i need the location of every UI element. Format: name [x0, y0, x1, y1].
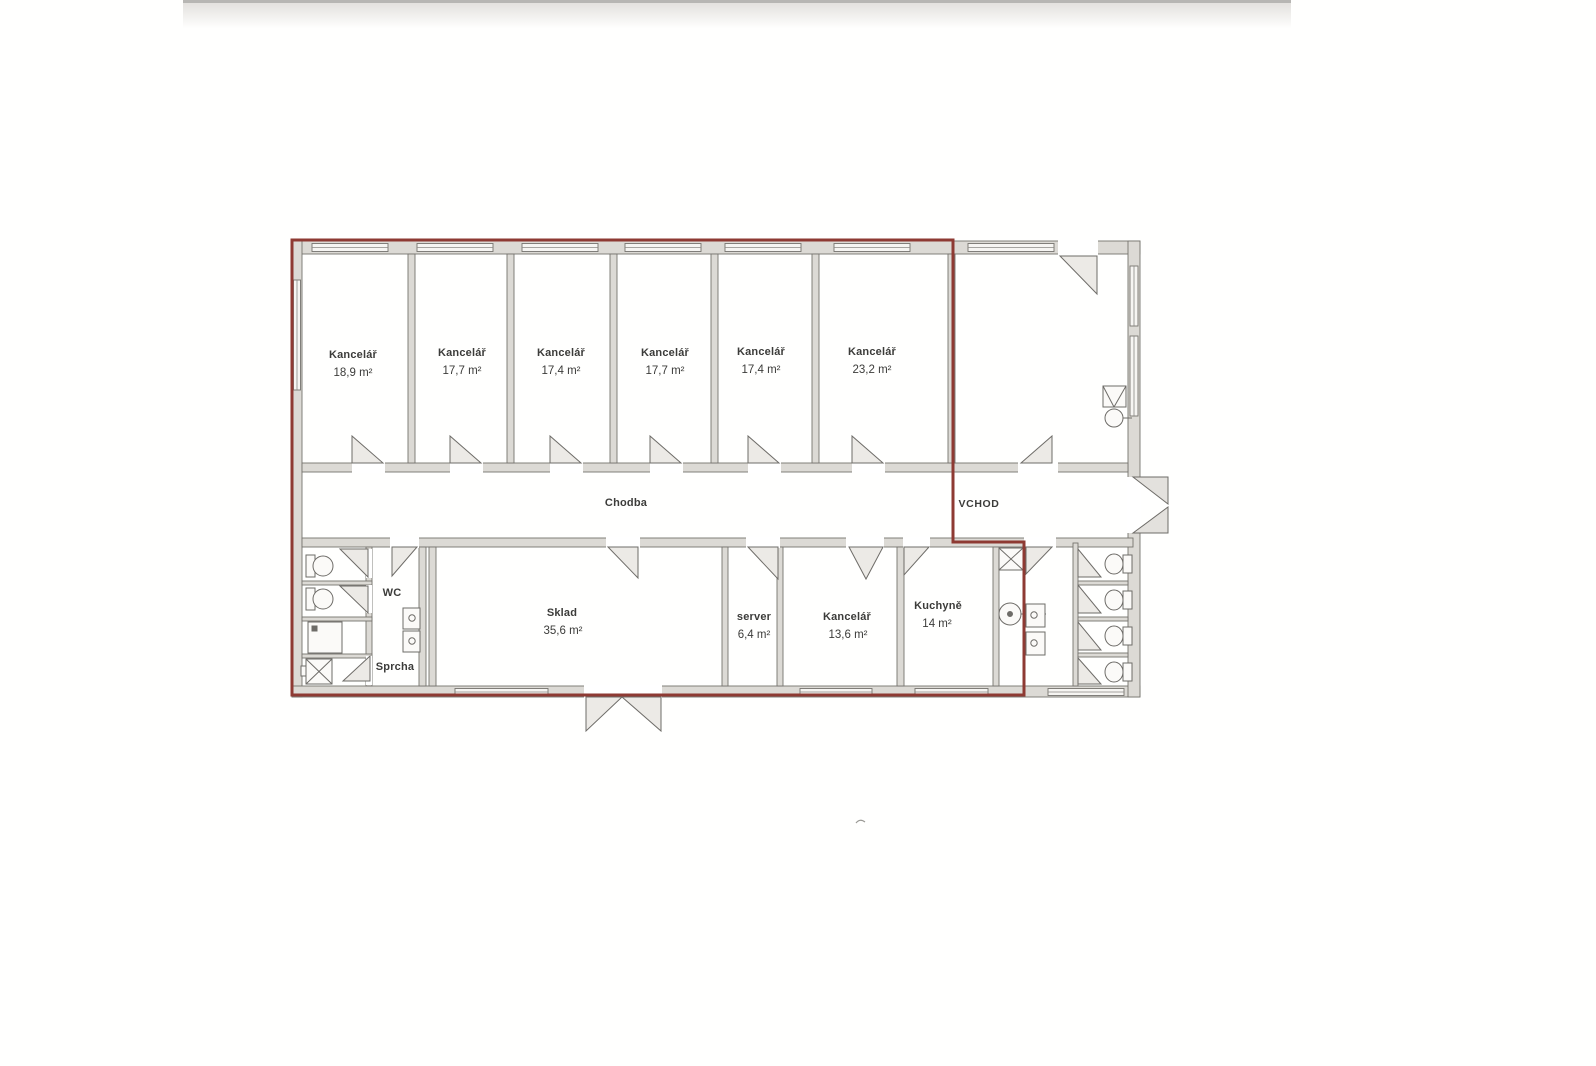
- shaft-box: [999, 548, 1023, 570]
- room-label-office3-area: 17,4 m²: [542, 365, 581, 377]
- exterior-double-door: [586, 697, 661, 731]
- room-label-shower: Sprcha: [376, 661, 415, 673]
- scanned-floor-plan-page: Kancelář 18,9 m² Kancelář 17,7 m² Kancel…: [0, 0, 1596, 1066]
- room-label-kitchen-name: Kuchyně: [914, 600, 962, 612]
- room-label-office6-name: Kancelář: [848, 346, 896, 358]
- sink-fixture: [1026, 632, 1045, 655]
- room-label-office1-area: 18,9 m²: [334, 367, 373, 379]
- sink-fixture: [1026, 604, 1045, 627]
- room-label-office5-name: Kancelář: [737, 346, 785, 358]
- room-label-office4-area: 17,7 m²: [646, 365, 685, 377]
- floor-plan-drawing: [0, 0, 1596, 1066]
- room-label-entrance: VCHOD: [959, 498, 1000, 510]
- room-label-kitchen-area: 14 m²: [922, 618, 951, 630]
- room-label-corridor: Chodba: [605, 497, 647, 509]
- room-label-storage-area: 35,6 m²: [544, 625, 583, 637]
- room-label-office2-area: 17,7 m²: [443, 365, 482, 377]
- room-label-office3-name: Kancelář: [537, 347, 585, 359]
- room-label-office7-name: Kancelář: [823, 611, 871, 623]
- sink-fixture: [403, 631, 420, 652]
- scan-smudge: [856, 820, 865, 823]
- room-label-storage-name: Sklad: [547, 607, 577, 619]
- utility-basin: [301, 659, 332, 684]
- toilet-fixture: [1105, 662, 1132, 682]
- toilet-fixture: [306, 555, 333, 577]
- room-label-office2-name: Kancelář: [438, 347, 486, 359]
- room-label-office7-area: 13,6 m²: [829, 629, 868, 641]
- room-label-server-area: 6,4 m²: [738, 629, 771, 641]
- room-label-office6-area: 23,2 m²: [853, 364, 892, 376]
- room-label-office1-name: Kancelář: [329, 349, 377, 361]
- room-label-server-name: server: [737, 611, 771, 623]
- sink-fixture: [403, 608, 420, 629]
- room-label-office4-name: Kancelář: [641, 347, 689, 359]
- room-label-office5-area: 17,4 m²: [742, 364, 781, 376]
- toilet-fixture: [1105, 554, 1132, 574]
- toilet-fixture: [306, 588, 333, 610]
- room-label-wc: WC: [383, 587, 402, 599]
- toilet-fixture: [1105, 590, 1132, 610]
- shower-tray: [308, 622, 342, 653]
- toilet-fixture: [1105, 626, 1132, 646]
